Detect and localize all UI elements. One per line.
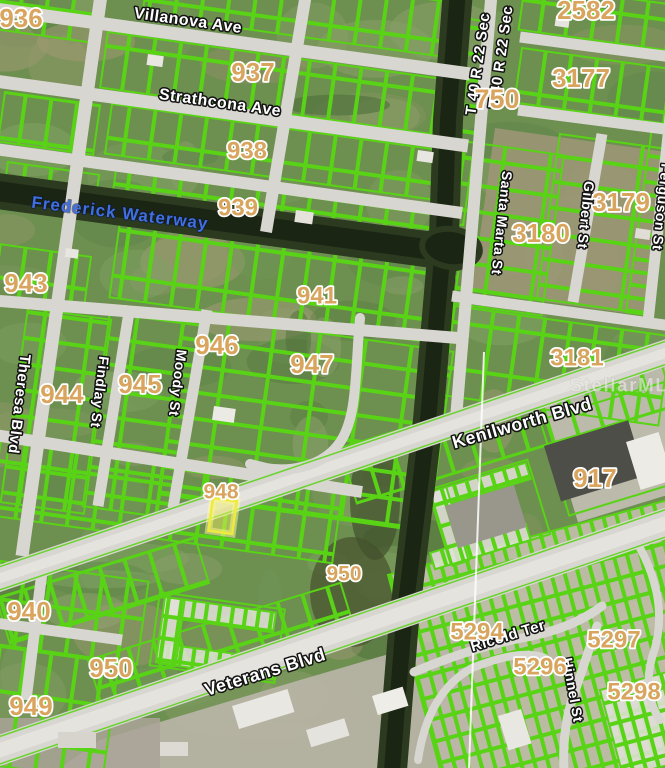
- block-number-label: 3181: [550, 345, 603, 372]
- block-number-label: 937: [231, 57, 274, 87]
- block-number-label: 917: [573, 463, 616, 493]
- block-number-label: 5296: [513, 654, 566, 681]
- map-viewport[interactable]: Villanova AveStrathcona AveTheresa BlvdF…: [0, 0, 665, 768]
- block-number-label: 949: [9, 691, 52, 721]
- block-number-label: 950: [89, 653, 132, 683]
- block-number-label: 5297: [587, 627, 640, 654]
- block-number-label: 946: [195, 330, 238, 360]
- block-number-label: 3180: [512, 218, 570, 248]
- block-number-label: 750: [474, 84, 519, 114]
- watermark: StellarMLS: [569, 376, 665, 397]
- block-number-label: 947: [290, 349, 333, 379]
- block-number-label: 948: [203, 481, 238, 504]
- block-number-label: 943: [4, 268, 47, 298]
- aerial-parcel-map[interactable]: Villanova AveStrathcona AveTheresa BlvdF…: [0, 0, 665, 768]
- block-number-label: 939: [218, 195, 258, 222]
- block-number-label: 5294: [450, 619, 504, 646]
- block-number-label: 936: [0, 3, 43, 33]
- block-number-label: 3177: [552, 63, 610, 93]
- block-number-label: 940: [7, 596, 50, 626]
- block-number-label: 5298: [607, 679, 660, 706]
- block-number-label: 945: [118, 369, 161, 399]
- block-number-label: 938: [227, 138, 267, 165]
- block-number-label: 2582: [557, 0, 615, 25]
- block-number-label: 941: [297, 283, 337, 310]
- block-number-label: 944: [40, 379, 84, 409]
- block-number-label: 950: [326, 563, 361, 586]
- block-number-label: 3179: [592, 187, 650, 217]
